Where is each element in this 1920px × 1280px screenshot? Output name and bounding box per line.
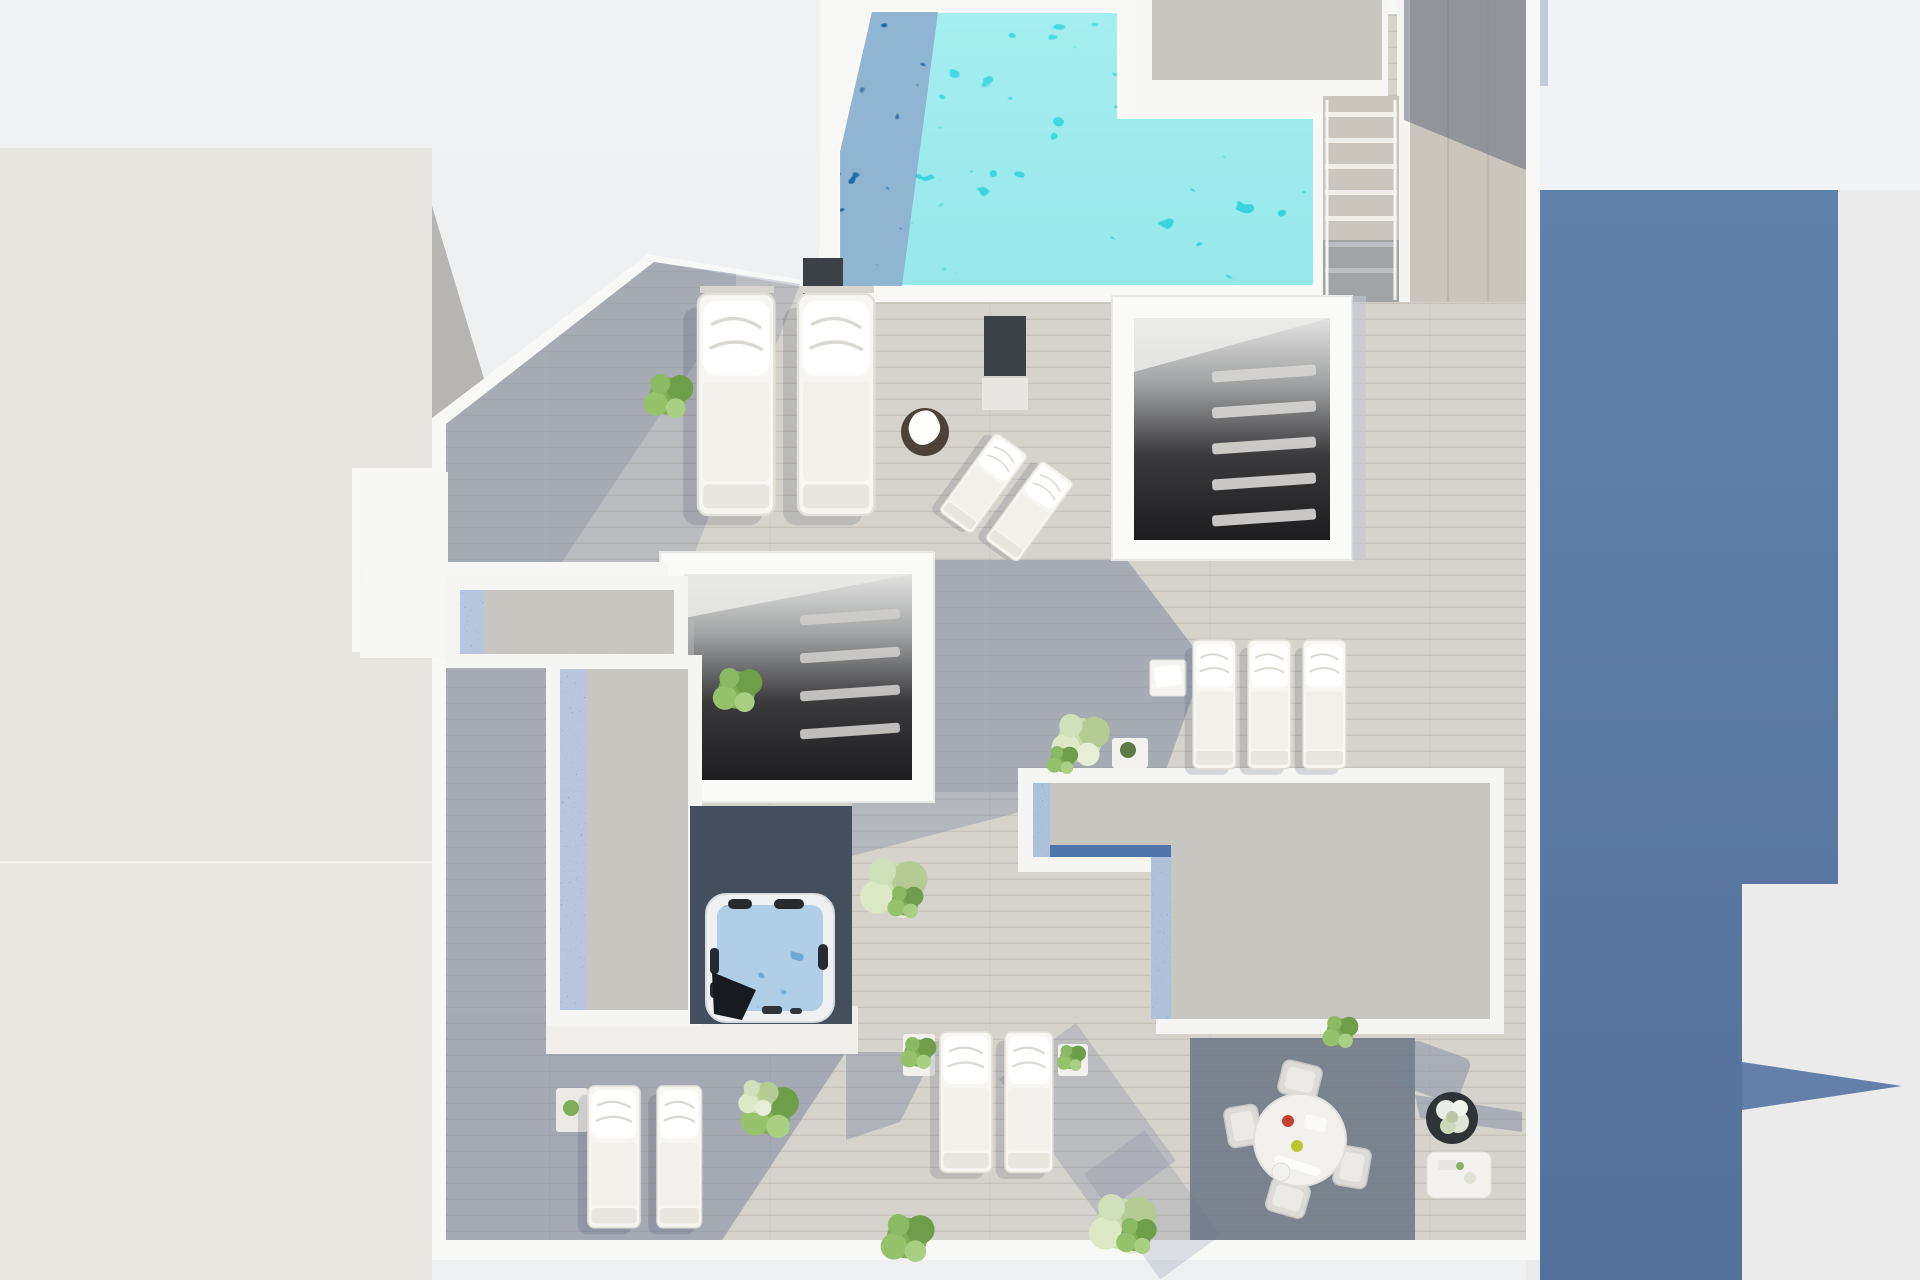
sun-lounger-sm-2 (996, 1032, 1053, 1179)
lounger-frame-bar (800, 286, 874, 293)
mini-plant (1120, 742, 1136, 758)
outdoor-staircase (1323, 96, 1399, 302)
pool-mat (984, 316, 1026, 376)
plate (1272, 1163, 1290, 1181)
side-table-round (901, 408, 949, 456)
sun-lounger-sw-2 (648, 1086, 701, 1234)
neighbor-roof-edge (0, 861, 432, 864)
table-plant (563, 1100, 579, 1116)
sun-lounger-upper-1 (683, 294, 774, 525)
pool-step (982, 378, 1028, 410)
sun-lounger-east-3 (1295, 640, 1346, 775)
neighbor-area-right-top (1526, 0, 1920, 190)
sun-lounger-east-2 (1240, 640, 1291, 775)
dining-table (1254, 1094, 1346, 1186)
flower-planter (1426, 1092, 1478, 1144)
rooftop-3d-render (0, 0, 1920, 1280)
sun-lounger-sm-1 (930, 1032, 992, 1179)
sun-lounger-east-1 (1185, 640, 1236, 775)
stairwell-box-shadow (1352, 296, 1366, 560)
jacuzzi (690, 806, 852, 1024)
towel (1154, 664, 1183, 687)
green-dish (1291, 1140, 1303, 1152)
lounger-frame-bar (700, 286, 774, 293)
stairwell-skylight-upper (1112, 296, 1366, 560)
gravel-roof-texture (1152, 0, 1382, 80)
neighbor-building-left-lower (0, 862, 432, 1280)
coffee-table (1427, 1152, 1491, 1198)
sun-lounger-sw-1 (578, 1086, 640, 1234)
sun-lounger-upper-2 (783, 294, 874, 525)
red-dish (1282, 1115, 1294, 1127)
